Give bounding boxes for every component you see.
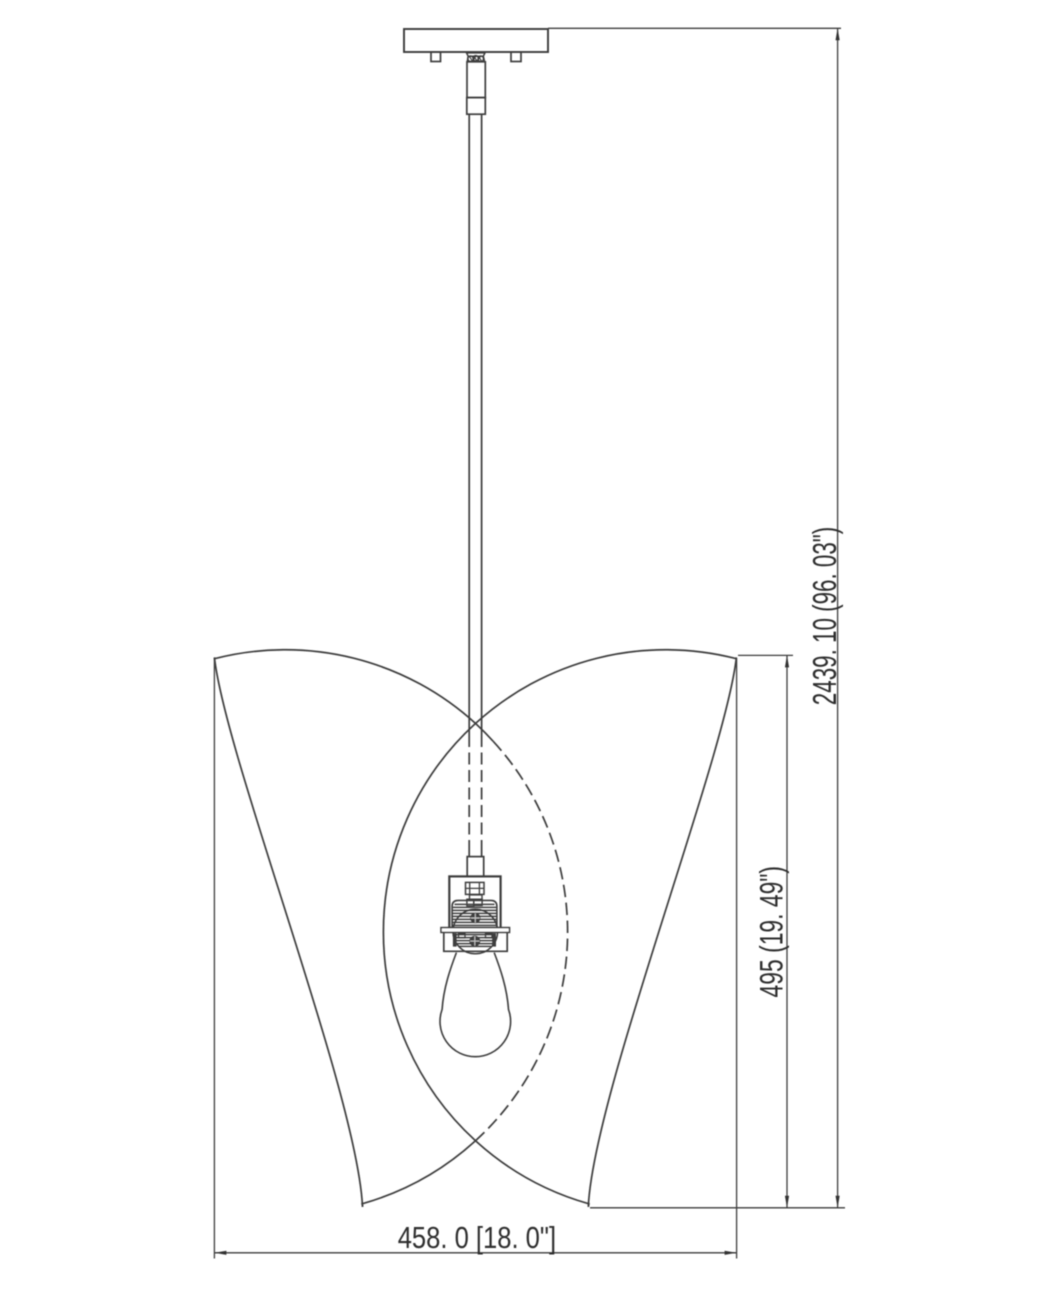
- svg-text:495 (19. 49"): 495 (19. 49"): [754, 866, 790, 998]
- svg-text:458. 0 [18. 0"]: 458. 0 [18. 0"]: [398, 1220, 556, 1255]
- svg-text:2439. 10 (96. 03"): 2439. 10 (96. 03"): [807, 527, 844, 705]
